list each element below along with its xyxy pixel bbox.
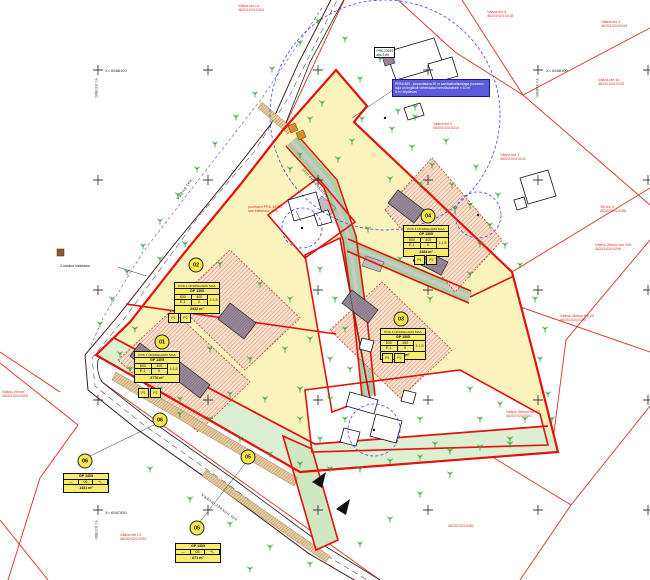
plot-data-table-06: GP 1305—06+/-1431 m² [63,473,109,493]
plot-value: II [421,243,438,249]
parcel-label: Vääna-Jõesuu tee 3046203:024:0301 [506,410,540,419]
plot-value: E,1 [135,369,152,375]
street-name-label: Vääna tee [175,178,193,201]
street-name-label: juurdepääsutee [301,167,330,199]
plot-marker-01: 01 [155,335,170,350]
parking-boxes: P1P2 [414,255,437,265]
parcel-label: 2-kordne kivielamu [60,264,90,268]
parcel-label-line: 46203:024:0262 [448,524,474,528]
parcel-label: Vääna tee 546203:024:0210 [433,122,459,131]
plot-value-cells: 500400E,1II [404,238,437,249]
parcel-label-line: 46203:024:0218 [487,14,513,18]
plot-ratio: 1:1,5 [168,364,179,375]
plot-values: 500400E,1II1:1,5 [381,341,425,352]
plot-ratio: 1:1,5 [414,341,425,352]
plot-value-cells: 600400E,1II [175,295,208,306]
parking-boxes: P1P2 [168,313,191,323]
plot-value: +/- [205,550,220,556]
parcel-label-line: 46203:024:0005 [2,394,28,398]
parcel-label-line: 46203:024:0253 [120,537,146,541]
plot-value: +/- [93,480,108,486]
parcel-label: Vääna tee 4a46203:024:0245 [598,78,624,87]
plot-marker-06: 06 [78,454,93,469]
plot-value: — [176,550,191,556]
parking-box: P1 [168,313,179,323]
parcel-label-line: 46203:024:0301 [506,414,540,418]
plot-value: E,1 [175,300,192,306]
plot-value: 06 [79,480,94,486]
parcel-label-line: 46203:024:0245 [598,82,624,86]
parcel-label: Vääna-Jõesuu tee 2946203:024:0295 [560,314,594,323]
plot-marker-03: 03 [394,312,409,327]
plot-data-table-05: GP 1305—05+/-671 m² [175,543,221,563]
parking-boxes: P1P2 [138,388,161,398]
parcel-label-line: 46203:024:0254 [238,8,264,12]
plot-data-table-01: POS 1 ÜKSIKELAMU MAAGP 1305600400E,1II1:… [134,351,180,383]
plot-marker-05: 05 [190,521,205,536]
parcel-label-line: 46203:024:0244 [601,24,627,28]
parcel-label: Vääna tee L646203:024:0254 [238,4,264,13]
plot-value: — [64,480,79,486]
parcel-label-line: 2-kordne kivielamu [60,264,90,268]
plot-area: 671 m² [176,555,220,562]
plot-value: II [192,300,209,306]
plot-marker-05: 05 [241,450,256,465]
parking-box: P2 [150,388,161,398]
parcel-label: Vääna-Jõesuu tee 29a46203:024:0296 [595,243,631,252]
well-id-line: abs 9,80 [377,53,393,57]
parking-box: P1 [382,353,393,363]
parking-box: P1 [138,388,149,398]
plot-marker-06: 06 [153,413,168,428]
site-plan-page: X= 6588100Y= 537800X= 6588100Y= 538300X=… [0,0,650,580]
parcel-label: Vääna tee 446203:024:0244 [601,20,627,29]
parking-boxes: P1P2 [382,353,405,363]
parking-box: P2 [426,255,437,265]
parcel-label-line: 46203:024:0158 [600,209,626,213]
plot-ratio: 1:1,5 [208,295,219,306]
plot-value: II [398,346,415,352]
plot-value-cells: 600400E,1II [135,364,168,375]
plot-value-cells: 500400E,1II [381,341,414,352]
plot-data-table-02: POS 2 ÜKSIKELAMU MAAGP 1305600400E,1II1:… [174,282,220,314]
plot-value: E,1 [404,243,421,249]
plot-data-table-04: POS 4 ÜKSIKELAMU MAAGP 1305500400E,1II1:… [403,225,449,257]
parcel-label: Vääna-Viti tee46203:024:0005 [2,390,28,399]
parcel-label: puurkaev PRK-14553san.kaitseala 10 m [248,205,282,214]
plot-value: 05 [191,550,206,556]
parcel-label-line: 46203:024:0296 [595,247,631,251]
parcel-label: 46203:024:0262 [448,524,474,528]
parcel-label-line: 46203:024:0295 [560,318,594,322]
parking-box: P2 [394,353,405,363]
annotation-overlay: PRK6 860 - kavandatava 50 m sanitaarkait… [0,0,650,580]
parcel-label-line: 46203:024:0210 [433,126,459,130]
parking-box: P1 [414,255,425,265]
parcel-label: Vääna tee 846203:024:0218 [487,10,513,19]
plot-marker-02: 02 [189,258,204,273]
well-note-line: 5 m³ ööpäevas [395,90,487,94]
plot-values: 600400E,1II1:1,5 [135,364,179,375]
plot-value: II [152,369,169,375]
plot-values: 500400E,1II1:1,5 [404,238,448,249]
parcel-label: Viti tee 346203:024:0158 [600,205,626,214]
plot-ratio: 1:1,5 [437,238,448,249]
plot-values: —06+/- [64,480,108,486]
parcel-label: Vääna tee L546203:024:0253 [120,533,146,542]
plot-area: 2922 m² [175,306,219,313]
street-name-label: Vääna-Jõesuu tee [200,492,239,522]
well-id-label: PRK-22645 abs 9,80 [374,47,395,58]
plot-value: E,1 [381,346,398,352]
plot-values: 600400E,1II1:1,5 [175,295,219,306]
parcel-label-line: 46203:024:0211 [500,157,526,161]
well-note-box: PRK6 860 - kavandatava 50 m sanitaarkait… [392,79,490,97]
parcel-label-line: san.kaitseala 10 m [248,209,282,213]
plot-marker-04: 04 [421,209,436,224]
plot-area: 1431 m² [64,485,108,492]
well-id-line: PRK-22645 [377,49,393,53]
parcel-label: Vääna tee 746203:024:0211 [500,153,526,162]
parking-box: P2 [180,313,191,323]
plot-area: 2770 m² [135,375,179,382]
plot-values: —05+/- [176,550,220,556]
